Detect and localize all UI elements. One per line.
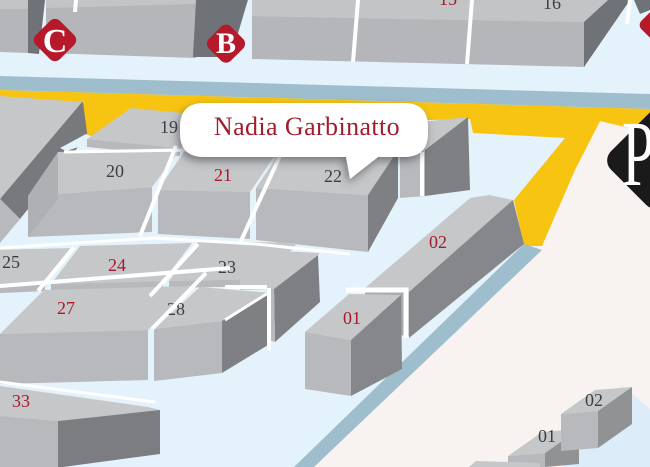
svg-text:B: B bbox=[216, 27, 236, 60]
svg-text:24: 24 bbox=[108, 255, 126, 275]
svg-text:25: 25 bbox=[2, 252, 20, 272]
svg-text:19: 19 bbox=[160, 117, 178, 137]
svg-text:33: 33 bbox=[12, 391, 30, 411]
svg-text:02: 02 bbox=[585, 390, 603, 410]
svg-text:20: 20 bbox=[106, 161, 124, 181]
svg-text:27: 27 bbox=[57, 298, 75, 318]
svg-text:01: 01 bbox=[538, 426, 556, 446]
svg-text:21: 21 bbox=[214, 165, 232, 185]
svg-text:C: C bbox=[43, 23, 68, 60]
svg-text:16: 16 bbox=[543, 0, 561, 13]
svg-text:22: 22 bbox=[324, 166, 342, 186]
svg-text:01: 01 bbox=[343, 308, 361, 328]
svg-text:Nadia Garbinatto: Nadia Garbinatto bbox=[214, 112, 400, 141]
svg-text:02: 02 bbox=[429, 232, 447, 252]
svg-text:15: 15 bbox=[439, 0, 457, 9]
svg-text:P: P bbox=[622, 102, 650, 205]
